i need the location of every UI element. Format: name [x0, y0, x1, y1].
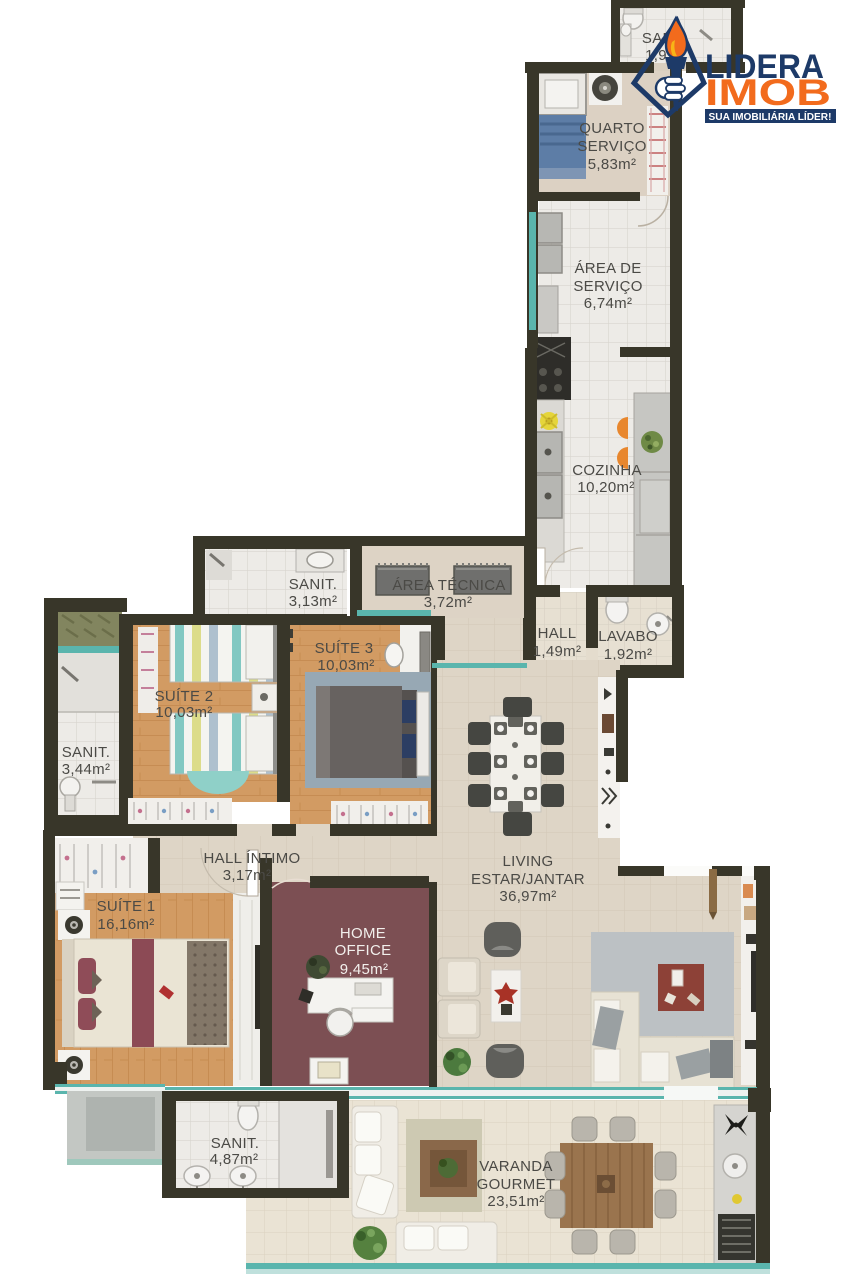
svg-text:IMOB: IMOB — [705, 72, 831, 113]
svg-text:SUA IMOBILIÁRIA LÍDER!: SUA IMOBILIÁRIA LÍDER! — [709, 110, 832, 123]
svg-text:HALL: HALL — [538, 625, 577, 642]
svg-text:3,17m²: 3,17m² — [223, 867, 272, 884]
svg-text:SUÍTE 2: SUÍTE 2 — [155, 688, 214, 705]
svg-text:HALL ÍNTIMO: HALL ÍNTIMO — [204, 850, 301, 867]
svg-text:5,83m²: 5,83m² — [588, 156, 637, 173]
svg-text:SERVIÇO: SERVIÇO — [577, 138, 646, 155]
svg-text:ESTAR/JANTAR: ESTAR/JANTAR — [471, 871, 585, 888]
svg-text:QUARTO: QUARTO — [579, 120, 644, 137]
svg-text:6,74m²: 6,74m² — [584, 295, 633, 312]
svg-text:VARANDA: VARANDA — [479, 1158, 553, 1175]
svg-text:SANIT.: SANIT. — [211, 1135, 259, 1152]
svg-text:OFFICE: OFFICE — [335, 942, 392, 959]
svg-text:SUÍTE 3: SUÍTE 3 — [315, 640, 374, 657]
svg-text:16,16m²: 16,16m² — [97, 916, 154, 933]
svg-text:LAVABO: LAVABO — [598, 628, 658, 645]
svg-text:ÁREA DE: ÁREA DE — [574, 260, 641, 277]
svg-text:COZINHA: COZINHA — [572, 462, 642, 479]
svg-text:4,87m²: 4,87m² — [210, 1151, 259, 1168]
svg-text:23,51m²: 23,51m² — [487, 1193, 544, 1210]
svg-text:SANIT.: SANIT. — [62, 744, 110, 761]
svg-text:36,97m²: 36,97m² — [499, 888, 556, 905]
svg-text:3,72m²: 3,72m² — [424, 594, 473, 611]
svg-text:1,49m²: 1,49m² — [533, 643, 582, 660]
svg-text:3,13m²: 3,13m² — [289, 593, 338, 610]
svg-text:SUÍTE 1: SUÍTE 1 — [97, 898, 156, 915]
svg-text:GOURMET: GOURMET — [477, 1176, 556, 1193]
svg-text:10,03m²: 10,03m² — [155, 704, 212, 721]
svg-text:HOME: HOME — [340, 925, 386, 942]
svg-text:10,03m²: 10,03m² — [317, 657, 374, 674]
svg-text:LIVING: LIVING — [503, 853, 554, 870]
svg-text:SANIT.: SANIT. — [289, 576, 337, 593]
svg-text:ÁREA TÉCNICA: ÁREA TÉCNICA — [392, 577, 505, 594]
svg-text:9,45m²: 9,45m² — [340, 961, 389, 978]
svg-text:3,44m²: 3,44m² — [62, 761, 111, 778]
svg-text:SERVIÇO: SERVIÇO — [573, 278, 642, 295]
svg-text:10,20m²: 10,20m² — [577, 479, 634, 496]
